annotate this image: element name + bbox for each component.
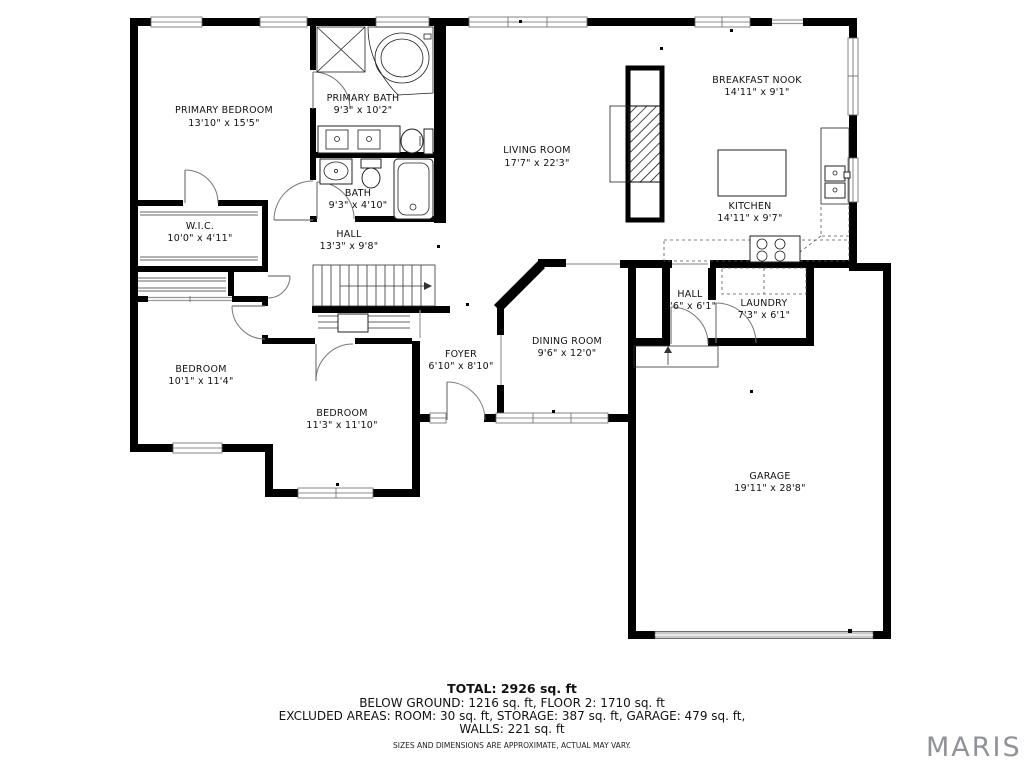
room-dims-bedroom-1: 10'1" x 11'4" — [168, 376, 233, 387]
window-primary-bath — [376, 17, 429, 27]
front-door — [447, 382, 485, 420]
stairs-lower-landing — [318, 314, 410, 332]
kitchen-sink-icon — [825, 166, 850, 198]
room-dims-bath: 9'3" x 4'10" — [329, 200, 388, 211]
window-bedroom-2 — [298, 488, 373, 498]
closet-bifold-doors — [148, 296, 232, 302]
maris-logo: MARIS — [926, 732, 1022, 763]
door-hall-to-garage — [671, 307, 708, 344]
footer-summary: TOTAL: 2926 sq. ft BELOW GROUND: 1216 sq… — [279, 681, 746, 750]
window-kitchen-sink — [848, 158, 858, 202]
room-dims-primary-bath: 9'3" x 10'2" — [334, 105, 393, 116]
stove-icon — [750, 236, 800, 262]
room-label-breakfast-nook: BREAKFAST NOOK — [712, 75, 802, 86]
room-dims-kitchen: 14'11" x 9'7" — [717, 213, 782, 224]
room-dims-hall: 13'3" x 9'8" — [320, 241, 379, 252]
room-dims-bedroom-2: 11'3" x 11'10" — [306, 420, 377, 431]
room-dims-wic: 10'0" x 4'11" — [167, 233, 232, 244]
room-label-dining-room: DINING ROOM — [532, 336, 602, 347]
room-dims-foyer: 6'10" x 8'10" — [428, 361, 493, 372]
door-laundry — [716, 303, 756, 343]
corner-bathtub-icon — [368, 27, 433, 95]
area-breakdown-line2: EXCLUDED AREAS: ROOM: 30 sq. ft, STORAGE… — [279, 709, 746, 723]
bath-sink-icon — [320, 159, 352, 184]
window-living-room — [469, 17, 587, 27]
garage-step — [634, 346, 718, 367]
room-label-garage: GARAGE — [749, 471, 790, 482]
room-dims-garage: 19'11" x 28'8" — [734, 483, 805, 494]
total-area-text: TOTAL: 2926 sq. ft — [447, 681, 577, 696]
room-label-hall: HALL — [336, 229, 362, 240]
fireplace-icon — [610, 68, 662, 220]
room-label-bedroom-2: BEDROOM — [316, 408, 367, 419]
stairs-main — [313, 265, 435, 332]
room-label-foyer: FOYER — [445, 349, 477, 360]
door-wic — [185, 170, 218, 203]
door-bedroom-1 — [232, 306, 265, 339]
room-label-bedroom-1: BEDROOM — [175, 364, 226, 375]
garage-door — [655, 629, 873, 639]
bathtub-icon — [394, 159, 433, 219]
floor-plan-page: PRIMARY BEDROOM 13'10" x 15'5" PRIMARY B… — [0, 0, 1024, 768]
closet-shelves — [138, 278, 226, 291]
window-foyer-sidelite — [430, 413, 446, 423]
room-dims-dining-room: 9'6" x 12'0" — [538, 348, 597, 359]
disclaimer-text: SIZES AND DIMENSIONS ARE APPROXIMATE, AC… — [393, 741, 631, 750]
door-hall-closet — [268, 276, 290, 298]
double-vanity-icon — [318, 126, 400, 153]
window-breakfast-nook-top — [695, 17, 750, 27]
room-dims-breakfast-nook: 14'11" x 9'1" — [724, 87, 789, 98]
washer-dryer-outline — [722, 268, 806, 294]
room-label-bath: BATH — [345, 188, 371, 199]
room-label-wic: W.I.C. — [186, 221, 214, 232]
door-bedroom-2 — [316, 344, 353, 381]
room-label-hall-small: HALL — [677, 289, 703, 300]
door-primary-bedroom — [274, 181, 313, 220]
toilet-primary-icon — [401, 129, 433, 154]
window-primary-bedroom-2 — [260, 17, 307, 27]
room-label-primary-bath: PRIMARY BATH — [327, 93, 400, 104]
window-dining — [496, 413, 608, 423]
area-breakdown-line1: BELOW GROUND: 1216 sq. ft, FLOOR 2: 1710… — [359, 696, 665, 710]
room-label-laundry: LAUNDRY — [741, 298, 788, 309]
window-nook-right — [848, 38, 858, 115]
room-dims-primary-bedroom: 13'10" x 15'5" — [188, 118, 259, 129]
room-dims-laundry: 7'3" x 6'1" — [738, 310, 791, 321]
room-dims-living-room: 17'7" x 22'3" — [504, 158, 569, 169]
area-breakdown-line3: WALLS: 221 sq. ft — [459, 722, 564, 736]
room-label-primary-bedroom: PRIMARY BEDROOM — [175, 105, 273, 116]
kitchen-island — [718, 150, 786, 196]
window-bedroom-1 — [173, 443, 222, 453]
shower-icon — [317, 27, 365, 72]
floor-plan-drawing: PRIMARY BEDROOM 13'10" x 15'5" PRIMARY B… — [0, 0, 1024, 768]
patio-slider — [772, 20, 803, 24]
room-label-living-room: LIVING ROOM — [503, 145, 570, 156]
room-dims-hall-small: 3'6" x 6'1" — [664, 301, 717, 312]
window-primary-bedroom-1 — [151, 17, 202, 27]
room-label-kitchen: KITCHEN — [729, 201, 772, 212]
toilet-bath-icon — [361, 159, 381, 188]
